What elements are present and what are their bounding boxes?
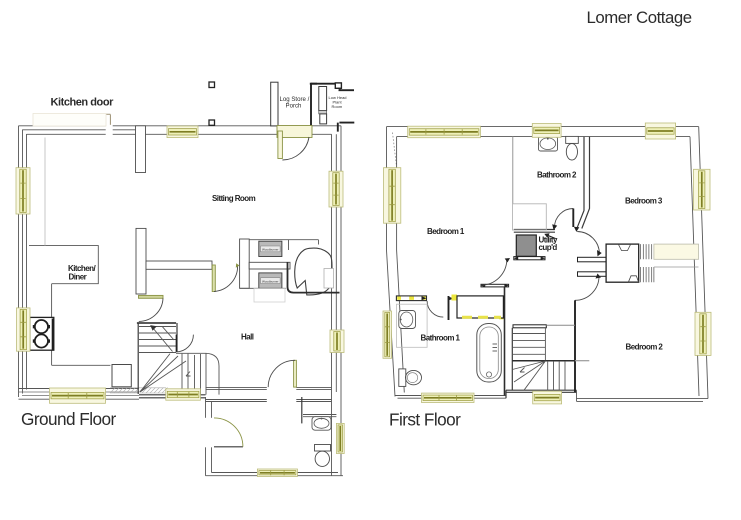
svg-text:Bedroom 3: Bedroom 3 bbox=[625, 197, 663, 206]
svg-text:Bathroom 2: Bathroom 2 bbox=[537, 171, 577, 180]
svg-text:Kitchen door: Kitchen door bbox=[51, 96, 115, 108]
svg-text:Bathroom 1: Bathroom 1 bbox=[421, 334, 461, 343]
svg-text:Hall: Hall bbox=[241, 333, 254, 342]
svg-text:First Floor: First Floor bbox=[389, 410, 461, 430]
svg-text:cup'd: cup'd bbox=[539, 243, 558, 252]
svg-text:Bedroom 2: Bedroom 2 bbox=[626, 343, 664, 352]
svg-text:Woodburner: Woodburner bbox=[262, 279, 278, 283]
svg-text:Bedroom 1: Bedroom 1 bbox=[427, 227, 465, 236]
svg-text:Diner: Diner bbox=[69, 272, 87, 281]
svg-text:Woodburner: Woodburner bbox=[262, 248, 278, 252]
svg-text:Ground Floor: Ground Floor bbox=[21, 409, 116, 429]
svg-text:Porch: Porch bbox=[286, 103, 302, 110]
svg-text:Sitting Room: Sitting Room bbox=[212, 194, 256, 203]
svg-text:Lomer Cottage: Lomer Cottage bbox=[587, 8, 692, 27]
svg-text:Room: Room bbox=[332, 104, 343, 109]
